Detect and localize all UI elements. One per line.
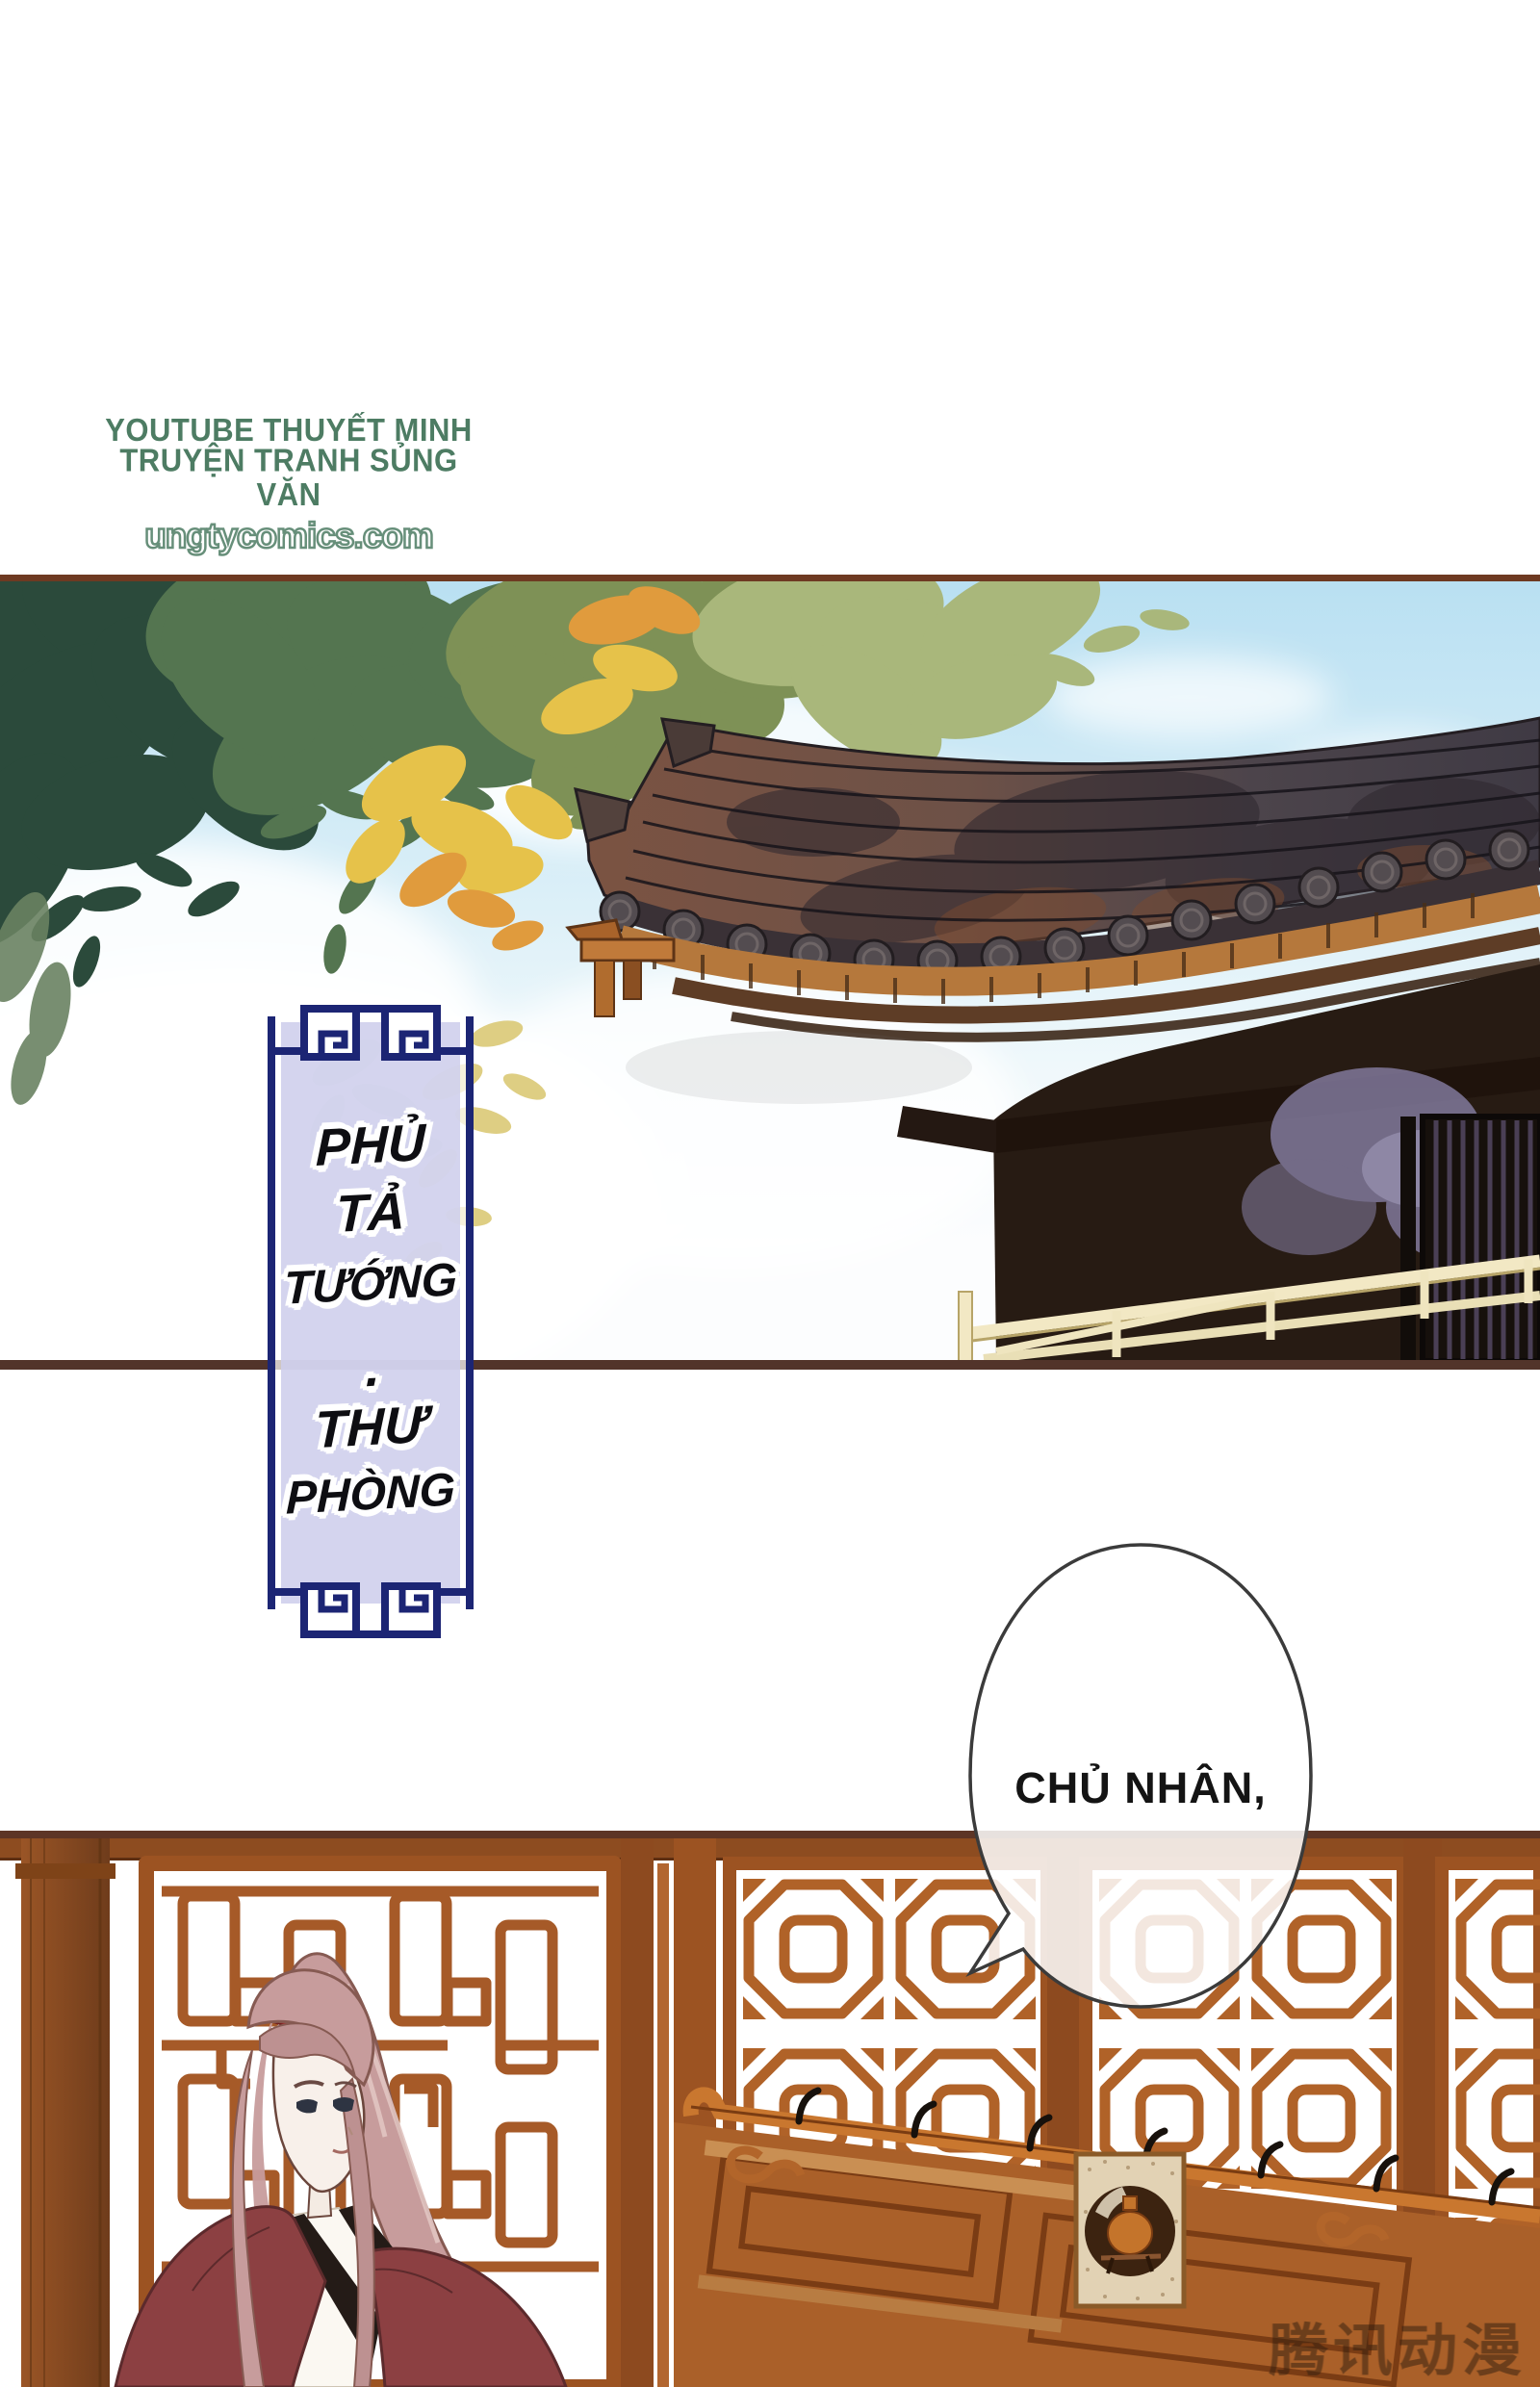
panel1-top-border <box>0 575 1540 581</box>
panel1-bottom-border <box>0 1360 1540 1370</box>
door-stile <box>621 1838 654 2387</box>
panel-sky-roof <box>0 581 1540 1361</box>
sky-roof-illustration <box>0 581 1540 1361</box>
banner-word-5: PHÒNG <box>268 1463 475 1526</box>
left-board <box>15 1838 115 2387</box>
location-banner: PHỦ TẢ TƯỚNG · THƯ PHÒNG <box>268 1001 474 1642</box>
banner-ornament-bottom <box>268 1573 474 1648</box>
speech-bubble-text: CHỦ NHÂN, <box>1014 1763 1267 1812</box>
watermark: 腾讯动漫 <box>1269 2304 1540 2387</box>
comic-page: YOUTUBE THUYẾT MINH TRUYỆN TRANH SỦNG VĂ… <box>0 0 1540 2387</box>
banner-word-2: TẢ <box>268 1179 475 1245</box>
banner-ornament-top <box>268 995 474 1070</box>
credit-url: ungtycomics.com <box>91 517 486 555</box>
speech-bubble: CHỦ NHÂN, <box>943 1521 1347 2040</box>
banner-word-3: TƯỚNG <box>268 1253 475 1316</box>
banner-word-1: PHỦ <box>268 1112 475 1178</box>
credit-block: YOUTUBE THUYẾT MINH TRUYỆN TRANH SỦNG VĂ… <box>91 414 486 555</box>
credit-line-2: TRUYỆN TRANH SỦNG VĂN <box>91 443 486 511</box>
vase-plaque <box>1076 2154 1184 2306</box>
banner-word-4: THƯ <box>268 1394 475 1460</box>
